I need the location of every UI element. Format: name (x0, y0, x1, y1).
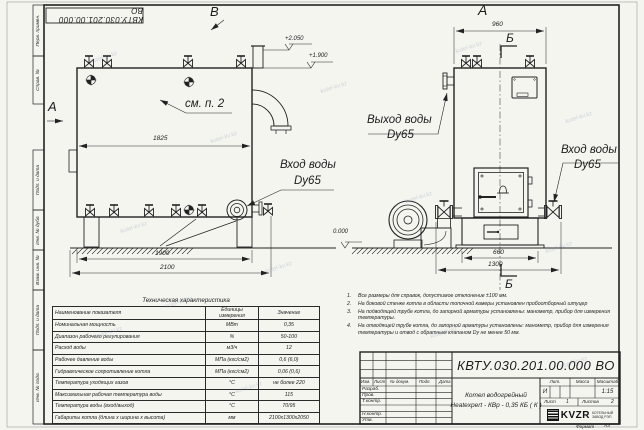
note-item: 2.На боковой стенке котла в области топо… (347, 301, 619, 308)
tb-sheet-value: 1 (566, 400, 569, 405)
tb-hdr-list: Лист (374, 380, 385, 384)
table-row: Габариты котла (длина х ширина х высота)… (53, 412, 320, 424)
table-row: Номинальная мощностьМВт0,35 (53, 320, 320, 332)
view-letter-a-side: А (48, 100, 57, 113)
table-row: Максимальная рабочая температура воды°С1… (53, 389, 320, 401)
dim-960: 960 (492, 22, 503, 29)
margin-label-sprav-n: Справ. № (33, 56, 44, 104)
tb-scale-label: Масштаб (595, 378, 620, 386)
note-item: 4.На отводящей трубе котла, до запорной … (347, 323, 619, 337)
callout-see-p2: см. п. 2 (185, 99, 224, 111)
format-label: Формат (576, 425, 594, 430)
spec-table: Техническая характеристика Наименование … (52, 297, 320, 424)
format-value: А3 (604, 425, 610, 430)
tb-lit-label: Лит. (540, 378, 570, 386)
dim-660: 660 (493, 250, 504, 257)
tb-hdr-podp: Подп. (419, 380, 431, 384)
logo-text: KVZR (561, 410, 590, 421)
doc-number: КВТУ.030.201.00.000 ВО (452, 352, 620, 378)
table-row: Диапазон рабочего регулирования%50-100 (53, 331, 320, 343)
tb-sheets-label: Листов (582, 400, 599, 405)
front-inlet-dy65: Dy65 (574, 160, 601, 172)
logo-mark-icon (547, 409, 559, 421)
elevation-zero: 0.000 (333, 229, 348, 235)
elevation-1900: +1.900 (309, 53, 328, 59)
elevation-2050: +2.050 (285, 36, 304, 42)
side-inlet-dy65: Dy65 (294, 176, 321, 188)
margin-label-vzam-inv: Взам. инв. № (33, 250, 44, 290)
tb-mass-label: Масса (570, 378, 595, 386)
front-outlet-dy65: Dy65 (387, 130, 414, 142)
top-rotated-doc-number: КВТУ.030.201.00.000 ВО (46, 8, 143, 23)
table-row: Рабочее давление водыМПа (кгс/см2)0,6 (6… (53, 354, 320, 366)
tb-scale-value: 1:15 (595, 386, 620, 398)
tb-lit-value: И (540, 386, 550, 398)
product-name: Котел водогрейный Heatexpert - КВр - 0,3… (452, 378, 540, 424)
table-row: Гидравлическое сопротивление котлаМПа (к… (53, 366, 320, 378)
front-outlet-label: Выход воды (367, 115, 432, 127)
tb-mass-value (570, 386, 595, 398)
tb-hdr-data: Дата (439, 380, 451, 384)
note-item: 3.На подводящей трубе котла, до запорной… (347, 309, 619, 323)
dim-2100: 2100 (160, 265, 174, 272)
note-item: 1.Все размеры для справок, допустимое от… (347, 293, 619, 300)
section-letter-b-top: Б (506, 32, 514, 44)
tb-row-utv: Утв. (362, 419, 373, 424)
notes-list: 1.Все размеры для справок, допустимое от… (347, 293, 619, 338)
dim-1300: 1300 (488, 262, 502, 269)
ground (70, 248, 612, 254)
tb-row-razrab: Разраб. (362, 388, 379, 393)
spec-header-row: Наименование показателя Единицыизмерения… (53, 307, 320, 320)
section-letter-b-bottom: Б (505, 278, 513, 290)
view-letter-v: В (210, 5, 219, 18)
table-row: Температура уходящих газов°Сне более 220 (53, 377, 320, 389)
margin-label-perv-primen: Перв. примен. (33, 5, 44, 56)
tb-row-tkontr: Т.контр. (362, 400, 381, 405)
margin-label-inv-dubl: Инв. № дубл. (33, 210, 44, 250)
tb-row-nkontr: Н.контр. (362, 413, 382, 418)
tb-sheet-label: Лист (544, 400, 556, 405)
margin-label-podp-data-1: Подп. и дата (33, 150, 44, 210)
logo-subtitle-2: ЗАВОД РЭП (592, 415, 613, 419)
view-letter-a-front: А (478, 3, 487, 17)
margin-label-inv-podl: Инв. № подл. (33, 350, 44, 424)
table-row: Расход водым3/ч12 (53, 343, 320, 355)
manufacturer-logo: KVZR КОТЕЛЬНЫЙ ЗАВОД РЭП (541, 407, 619, 423)
front-inlet-label: Вход воды (561, 145, 617, 157)
dim-1900: 1900 (155, 251, 169, 258)
tb-sheets-value: 2 (611, 400, 614, 405)
tb-hdr-izm: Изм. (361, 380, 370, 384)
dim-1825: 1825 (153, 136, 167, 143)
table-row: Температура воды (вход/выход)°С70/95 (53, 401, 320, 413)
drawing-sheet: Перв. примен. Справ. № Подп. и дата Инв.… (0, 0, 644, 430)
margin-label-podp-data-2: Подп. и дата (33, 290, 44, 350)
side-inlet-label: Вход воды (280, 160, 336, 172)
tb-hdr-dokum: № докум. (390, 380, 409, 384)
